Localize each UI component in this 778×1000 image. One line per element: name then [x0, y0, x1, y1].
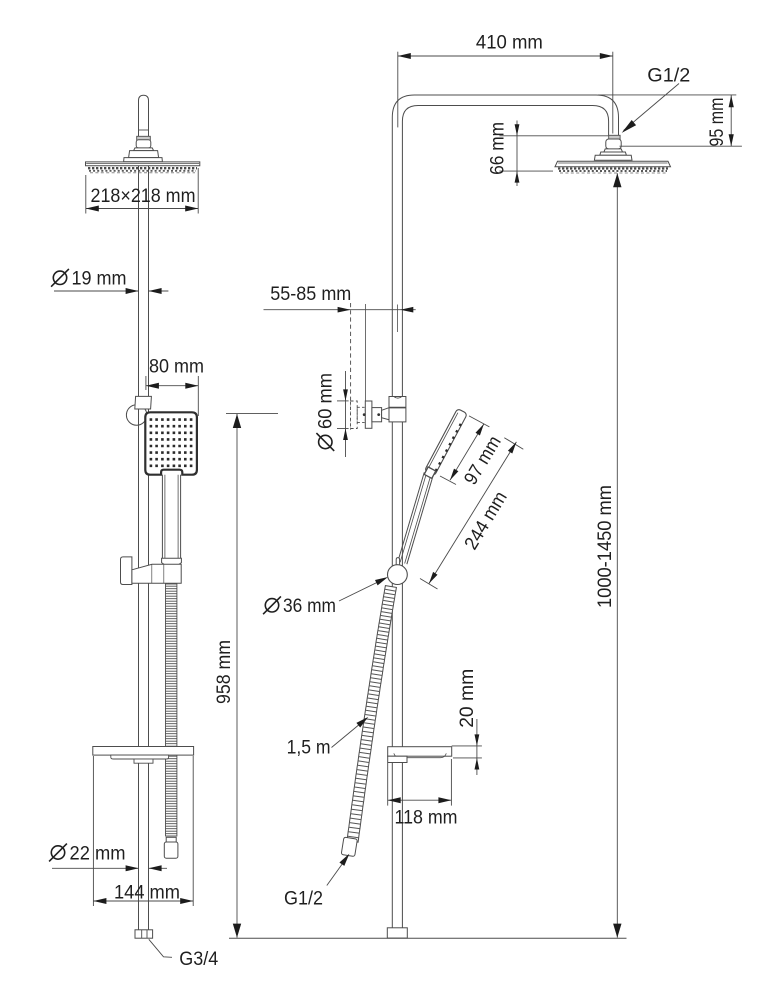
- svg-text:19 mm: 19 mm: [72, 269, 127, 290]
- svg-text:118 mm: 118 mm: [395, 808, 458, 829]
- svg-text:95 mm: 95 mm: [707, 98, 728, 147]
- svg-text:G1/2: G1/2: [647, 66, 690, 87]
- svg-text:80 mm: 80 mm: [149, 356, 204, 377]
- svg-text:36 mm: 36 mm: [283, 596, 336, 617]
- svg-text:1,5 m: 1,5 m: [287, 738, 331, 759]
- svg-text:958 mm: 958 mm: [214, 640, 235, 704]
- svg-text:218×218 mm: 218×218 mm: [91, 186, 196, 207]
- svg-text:66 mm: 66 mm: [488, 122, 509, 175]
- svg-text:60 mm: 60 mm: [316, 373, 337, 429]
- svg-text:G1/2: G1/2: [284, 889, 323, 910]
- svg-text:55-85 mm: 55-85 mm: [270, 284, 351, 305]
- svg-text:G3/4: G3/4: [179, 949, 218, 970]
- svg-text:20 mm: 20 mm: [457, 669, 478, 728]
- svg-text:22 mm: 22 mm: [70, 843, 126, 864]
- svg-text:1000-1450 mm: 1000-1450 mm: [595, 485, 616, 608]
- svg-text:144 mm: 144 mm: [114, 883, 180, 904]
- svg-text:410 mm: 410 mm: [476, 33, 543, 54]
